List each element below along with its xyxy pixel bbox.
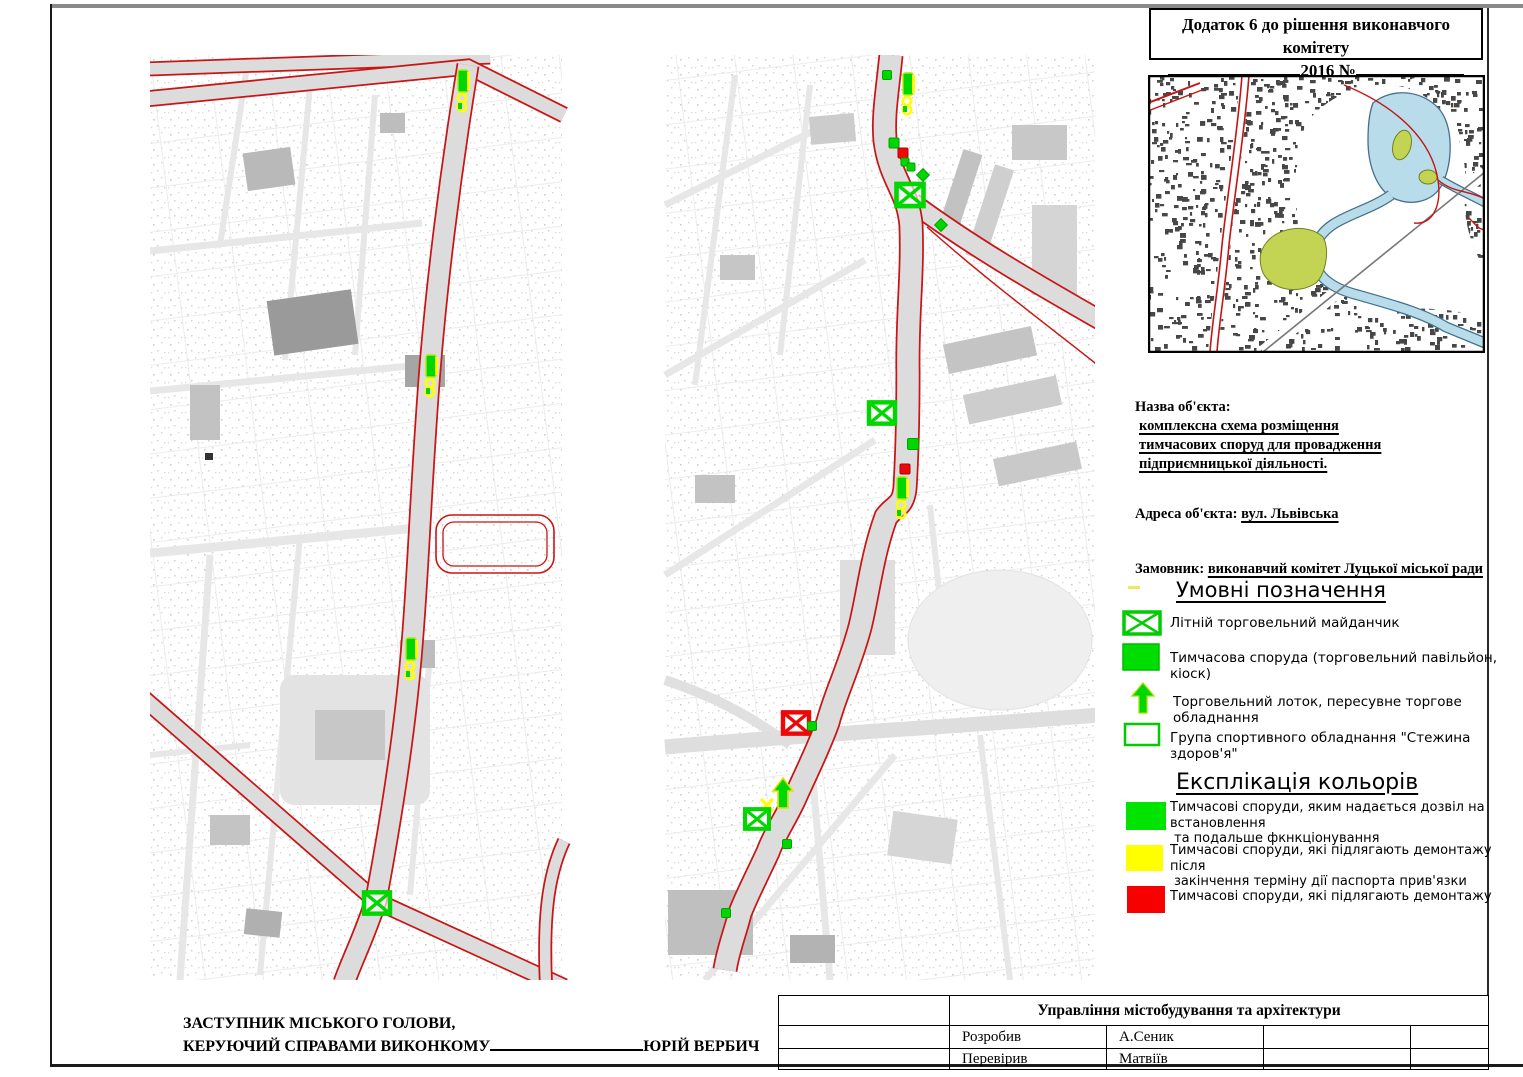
overview-situation-map <box>1148 75 1485 353</box>
signature-blank-line <box>490 1037 643 1051</box>
color-swatch-yellow <box>1126 845 1163 871</box>
object-info-block: Назва об'єкта: комплексна схема розміщен… <box>1135 398 1487 579</box>
legend-title: Умовні позначення <box>1176 578 1386 602</box>
color-swatch-red <box>1127 886 1165 913</box>
legend-item-label: Тимчасова споруда (торговельний павільйо… <box>1170 650 1523 682</box>
color-item-text: Тимчасові споруди, яким надається дозвіл… <box>1170 800 1500 847</box>
title-block-empty-cell <box>1411 1049 1489 1070</box>
title-block-empty-cell <box>779 1026 950 1049</box>
signature-block: ЗАСТУПНИК МІСЬКОГО ГОЛОВИ, КЕРУЮЧИЙ СПРА… <box>183 1012 760 1058</box>
object-address-row: Адреса об'єкта: вул. Львівська <box>1135 505 1487 524</box>
legend-item-label: Літній торговельний майданчик <box>1170 615 1400 631</box>
blank-line <box>1356 61 1464 76</box>
title-block-empty-cell <box>1411 1026 1489 1049</box>
yellow-dash-icon <box>1128 586 1140 589</box>
object-name-value: комплексна схема розміщення тимчасових с… <box>1139 417 1389 474</box>
legend-item-label: Торговельний лоток, пересувне торгове об… <box>1173 694 1523 726</box>
title-block-name: А.Сеник <box>1107 1026 1264 1049</box>
title-block-empty-cell <box>1264 1049 1411 1070</box>
customer-label: Замовник: <box>1135 561 1204 577</box>
center-map <box>665 55 1095 980</box>
temporary-structure-icon <box>1122 643 1160 671</box>
signature-line1: ЗАСТУПНИК МІСЬКОГО ГОЛОВИ, <box>183 1012 760 1035</box>
detail-maps <box>150 55 1095 980</box>
customer-value: виконавчий комітет Луцької міської ради <box>1208 561 1483 577</box>
title-block-empty-cell <box>1264 1026 1411 1049</box>
object-address-value: вул. Львівська <box>1241 506 1338 522</box>
trade-tray-arrow-icon <box>1130 682 1156 714</box>
decision-header-box: Додаток 6 до рішення виконавчого комітет… <box>1149 8 1483 60</box>
title-block-empty-cell <box>779 1049 950 1070</box>
scheme-document-page: Додаток 6 до рішення виконавчого комітет… <box>0 0 1523 1077</box>
color-item-text: Тимчасові споруди, які підлягають демонт… <box>1170 889 1500 905</box>
title-block-table: Управління містобудування та архітектури… <box>778 995 1489 1070</box>
object-address-label: Адреса об'єкта: <box>1135 506 1238 522</box>
customer-row: Замовник: виконавчий комітет Луцької міс… <box>1135 560 1487 579</box>
title-block-role: Перевірив <box>950 1049 1107 1070</box>
title-block-empty-cell <box>779 996 950 1026</box>
object-name-label: Назва об'єкта: <box>1135 398 1231 417</box>
sports-equipment-icon <box>1123 722 1161 747</box>
signature-line2: КЕРУЮЧИЙ СПРАВАМИ ВИКОНКОМУЮРІЙ ВЕРБИЧ <box>183 1035 760 1058</box>
left-map <box>150 55 564 980</box>
signature-name: ЮРІЙ ВЕРБИЧ <box>643 1038 759 1055</box>
title-block-role: Розробив <box>950 1026 1107 1049</box>
legend-item-label: Група спортивного обладнання "Стежина зд… <box>1170 730 1523 762</box>
color-item-text: Тимчасові споруди, які підлягають демонт… <box>1170 843 1500 890</box>
summer-trade-platform-icon <box>1122 610 1162 636</box>
title-block-name: Матвіїв <box>1107 1049 1264 1070</box>
page-frame-left <box>50 4 52 1066</box>
title-block-department: Управління містобудування та архітектури <box>950 996 1489 1026</box>
decision-header-line1: Додаток 6 до рішення виконавчого комітет… <box>1151 14 1481 60</box>
object-name-row: Назва об'єкта: комплексна схема розміщен… <box>1135 398 1487 474</box>
colors-legend-title: Експлікація кольорів <box>1176 770 1418 795</box>
color-swatch-green <box>1126 802 1166 830</box>
blank-line <box>1168 61 1300 76</box>
